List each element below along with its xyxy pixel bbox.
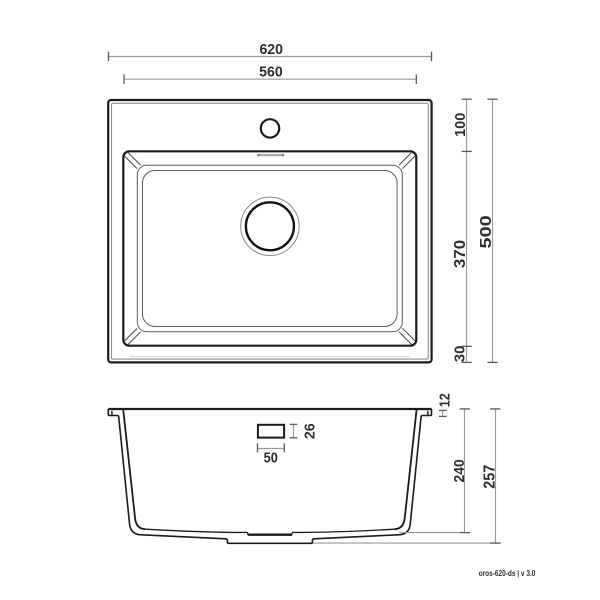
svg-text:370: 370 <box>452 240 469 268</box>
svg-text:50: 50 <box>264 448 278 465</box>
svg-text:100: 100 <box>453 113 469 137</box>
svg-text:oros-620-ds | v 3.0: oros-620-ds | v 3.0 <box>479 569 536 578</box>
svg-text:30: 30 <box>452 346 469 363</box>
svg-text:240: 240 <box>452 459 469 482</box>
svg-text:620: 620 <box>259 42 283 58</box>
svg-text:500: 500 <box>477 215 495 248</box>
svg-text:257: 257 <box>481 465 499 489</box>
svg-text:12: 12 <box>436 393 453 407</box>
svg-text:26: 26 <box>302 423 318 439</box>
svg-text:560: 560 <box>259 64 283 80</box>
